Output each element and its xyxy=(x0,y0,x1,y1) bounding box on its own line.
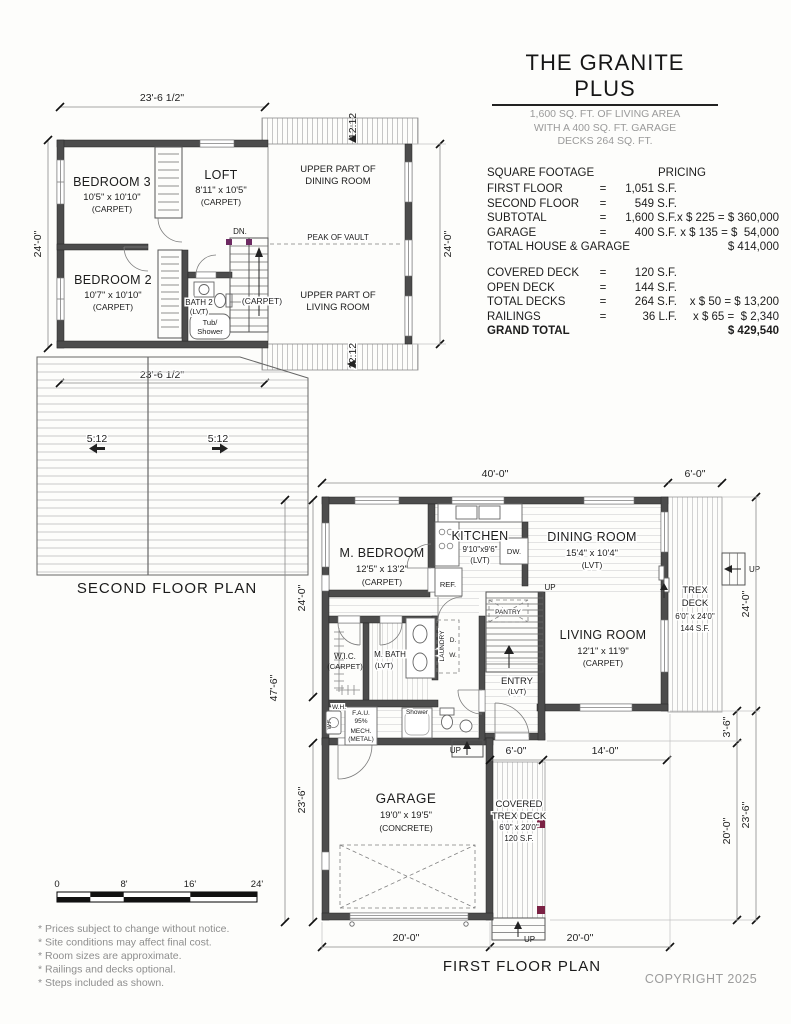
table-row: SUBTOTAL=1,600 S.F.x $ 225 = $ 360,000 xyxy=(487,211,779,226)
wall xyxy=(486,738,493,920)
bedroom3-floor: (CARPET) xyxy=(92,204,132,214)
wall xyxy=(329,590,430,597)
loft-label: LOFT xyxy=(204,168,237,182)
sink xyxy=(460,720,472,732)
sink xyxy=(413,653,427,671)
dim-left: 24'-0" xyxy=(32,230,44,257)
row-calc xyxy=(677,182,779,197)
wall xyxy=(322,738,329,920)
stairs-floor: (CARPET) xyxy=(242,296,282,306)
row-value: 264 S.F. xyxy=(609,295,677,310)
fau-label: F.A.U. xyxy=(352,710,370,717)
bath2-floor: (LVT) xyxy=(190,307,209,316)
first-floor-plan-title: FIRST FLOOR PLAN xyxy=(443,958,601,975)
row-eq xyxy=(597,324,609,339)
wall xyxy=(479,616,485,740)
row-label: GARAGE xyxy=(487,226,597,241)
row-calc: x $ 135 = $ 54,000 xyxy=(677,226,779,241)
mbedroom-floor: (CARPET) xyxy=(362,577,402,587)
row-calc xyxy=(677,266,779,281)
wall xyxy=(538,592,545,740)
refrigerator-label: REF. xyxy=(440,580,456,589)
row-label: TOTAL HOUSE & GARAGE xyxy=(487,240,677,255)
scale-24: 24' xyxy=(251,879,264,890)
row-value: 400 S.F. xyxy=(609,226,677,241)
kitchen-floor: (LVT) xyxy=(470,556,490,565)
wf-label: W.F. xyxy=(327,718,333,729)
row-value: 549 S.F. xyxy=(609,197,677,212)
covered-deck-label-2: TREX DECK xyxy=(492,811,547,822)
door xyxy=(124,247,148,271)
pricing-table: SQUARE FOOTAGE PRICING FIRST FLOOR=1,051… xyxy=(487,166,779,339)
wall xyxy=(57,341,268,348)
dryer-label: D. xyxy=(450,637,457,644)
shower-label: Shower xyxy=(406,709,429,716)
wic-label: W.I.C. xyxy=(334,652,356,661)
dim-right-36: 3'-6" xyxy=(721,716,733,737)
row-label: FIRST FLOOR xyxy=(487,182,597,197)
mbath-vanity xyxy=(406,618,435,678)
table-row: FIRST FLOOR=1,051 S.F. xyxy=(487,182,779,197)
row-eq: = xyxy=(597,281,609,296)
upper-living-label-1: UPPER PART OF xyxy=(300,290,376,301)
row-calc: x $ 65 = $ 2,340 xyxy=(677,310,779,325)
row-label: COVERED DECK xyxy=(487,266,597,281)
slope-label-top: 12:12 xyxy=(347,113,359,139)
pantry-label: PANTRY xyxy=(495,609,521,616)
table-row: GARAGE=400 S.F.x $ 135 = $ 54,000 xyxy=(487,226,779,241)
note-line: * Site conditions may affect final cost. xyxy=(38,937,212,949)
garage-label: GARAGE xyxy=(376,791,437,806)
row-eq: = xyxy=(597,310,609,325)
mbedroom-size: 12'5" x 13'2" xyxy=(356,564,408,575)
pricing-header: PRICING xyxy=(658,166,779,181)
washer-label: W. xyxy=(449,652,457,659)
mech-label: MECH. xyxy=(351,728,372,735)
sink xyxy=(456,506,477,519)
living-label: LIVING ROOM xyxy=(560,628,647,642)
upper-living-label-2: LIVING ROOM xyxy=(306,302,369,313)
table-row: SECOND FLOOR=549 S.F. xyxy=(487,197,779,212)
garage-size: 19'0" x 19'5" xyxy=(380,810,432,821)
row-value: 1,051 S.F. xyxy=(609,182,677,197)
row-label: RAILINGS xyxy=(487,310,597,325)
dim-top: 40'-0" xyxy=(482,468,509,480)
floor-plan-drawing: BEDROOM 3 10'5" x 10'10" (CARPET) LOFT 8… xyxy=(0,0,791,1024)
up-label: UP xyxy=(450,746,461,755)
trex-deck-size: 6'0" x 24'0" xyxy=(675,612,715,621)
dining-floor: (LVT) xyxy=(582,560,603,570)
deck-steps xyxy=(722,553,745,585)
note-line: * Railings and decks optional. xyxy=(38,964,176,976)
loft-floor: (CARPET) xyxy=(201,197,241,207)
second-floor-plan-title: SECOND FLOOR PLAN xyxy=(77,580,257,597)
living-floor: (CARPET) xyxy=(583,658,623,668)
dim-bottom-garage: 20'-0" xyxy=(393,932,420,944)
first-floor-plan: M. BEDROOM 12'5" x 13'2" (CARPET) KITCHE… xyxy=(268,468,760,975)
row-eq: = xyxy=(597,197,609,212)
dishwasher-label: DW. xyxy=(507,547,521,556)
closet xyxy=(158,250,182,338)
square-footage-header: SQUARE FOOTAGE xyxy=(487,166,658,181)
covered-deck-label-1: COVERED xyxy=(496,799,543,810)
dim-left-upper: 24'-0" xyxy=(296,584,308,611)
entry-floor: (LVT) xyxy=(508,687,527,696)
up-label: UP xyxy=(544,583,555,592)
dim-right-lower: 20'-0" xyxy=(721,817,733,844)
loft-size: 8'11" x 10'5" xyxy=(195,185,246,196)
scale-16: 16' xyxy=(184,879,197,890)
row-calc: x $ 50 = $ 13,200 xyxy=(677,295,779,310)
row-calc: $ 429,540 xyxy=(677,324,779,339)
upper-dining-label-1: UPPER PART OF xyxy=(300,164,376,175)
row-label: SUBTOTAL xyxy=(487,211,597,226)
newel-post xyxy=(226,239,232,245)
scale-bar: 0 8' 16' 24' xyxy=(54,879,263,902)
wall xyxy=(363,623,369,703)
dim-right-upper: 24'-0" xyxy=(740,590,752,617)
laundry-label: LAUNDRY xyxy=(439,630,446,662)
fau-pct-label: 95% xyxy=(354,718,367,725)
trex-deck-label-1: TREX xyxy=(682,585,708,596)
scale-8: 8' xyxy=(120,879,127,890)
roof-plan: 5:12 5:12 SECOND FLOOR PLAN xyxy=(37,357,308,597)
roof-slope-left: 5:12 xyxy=(87,433,108,445)
mbath-label: M. BATH xyxy=(374,650,406,659)
kitchen-size: 9'10"x9'6" xyxy=(463,545,498,554)
newel-post xyxy=(246,239,252,245)
dim-mid-14: 14'-0" xyxy=(592,745,619,757)
roof-strip-top xyxy=(262,118,418,144)
wall xyxy=(57,140,268,147)
bedroom2-label: BEDROOM 2 xyxy=(74,273,152,287)
bedroom2-size: 10'7" x 10'10" xyxy=(84,290,141,301)
second-floor-plan: BEDROOM 3 10'5" x 10'10" (CARPET) LOFT 8… xyxy=(32,92,454,387)
scale-0: 0 xyxy=(54,879,59,890)
table-row-grand-total: GRAND TOTAL$ 429,540 xyxy=(487,324,779,339)
dim-mid-6: 6'-0" xyxy=(506,745,527,757)
dim-top: 23'-6 1/2" xyxy=(140,92,185,104)
covered-deck-area: 120 S.F. xyxy=(504,834,533,843)
row-calc xyxy=(677,281,779,296)
garage-door xyxy=(350,913,468,926)
row-value: 1,600 S.F. xyxy=(609,211,677,226)
sink xyxy=(479,506,500,519)
dining-size: 15'4" x 10'4" xyxy=(566,548,618,559)
closet xyxy=(155,147,182,242)
stairs-dn-label: DN. xyxy=(233,227,247,236)
window xyxy=(405,162,412,336)
table-row: TOTAL HOUSE & GARAGE$ 414,000 xyxy=(487,240,779,255)
row-calc xyxy=(677,197,779,212)
hall-floor xyxy=(329,597,479,616)
plan-subtitle-1: 1,600 SQ. FT. OF LIVING AREA xyxy=(492,108,718,122)
living-size: 12'1" x 11'9" xyxy=(577,646,628,657)
mbedroom-label: M. BEDROOM xyxy=(340,546,425,560)
row-eq: = xyxy=(597,182,609,197)
row-label: OPEN DECK xyxy=(487,281,597,296)
row-label: GRAND TOTAL xyxy=(487,324,597,339)
tub-label-2: Shower xyxy=(197,327,223,336)
dim-deck-top: 6'-0" xyxy=(685,468,706,480)
upper-dining-label-2: DINING ROOM xyxy=(305,176,371,187)
dim-left-outer: 47'-6" xyxy=(268,674,280,701)
table-row: COVERED DECK=120 S.F. xyxy=(487,266,779,281)
deck-post xyxy=(537,906,545,914)
row-value: 120 S.F. xyxy=(609,266,677,281)
bedroom3-size: 10'5" x 10'10" xyxy=(83,192,140,203)
trex-deck-label-2: DECK xyxy=(682,598,709,609)
deck-steps xyxy=(492,918,545,940)
plan-subtitle-3: DECKS 264 SQ. FT. xyxy=(492,135,718,149)
table-row: TOTAL DECKS=264 S.F.x $ 50 = $ 13,200 xyxy=(487,295,779,310)
roof-strip-bottom xyxy=(262,344,418,370)
bedroom3-label: BEDROOM 3 xyxy=(73,175,151,189)
stairs-down xyxy=(226,238,268,332)
toilet xyxy=(440,708,454,715)
notes: * Prices subject to change without notic… xyxy=(38,923,229,989)
entry-floor xyxy=(485,660,538,733)
mbath-floor: (LVT) xyxy=(375,661,394,670)
trex-deck-area: 144 S.F. xyxy=(680,624,709,633)
plan-subtitle-2: WITH A 400 SQ. FT. GARAGE xyxy=(492,122,718,136)
sink xyxy=(413,625,427,643)
row-eq: = xyxy=(597,211,609,226)
table-row: OPEN DECK=144 S.F. xyxy=(487,281,779,296)
copyright: COPYRIGHT 2025 xyxy=(645,972,757,986)
row-value: 36 L.F. xyxy=(609,310,677,325)
water-heater-label: W.H. xyxy=(332,704,346,711)
row-calc: $ 414,000 xyxy=(677,240,779,255)
dim-right: 24'-0" xyxy=(442,230,454,257)
covered-deck-size: 6'0" x 20'0" xyxy=(499,823,539,832)
garage-floor: (CONCRETE) xyxy=(379,823,433,833)
row-label: SECOND FLOOR xyxy=(487,197,597,212)
entry-label: ENTRY xyxy=(501,676,534,687)
note-line: * Room sizes are approximate. xyxy=(38,950,182,962)
bedroom2-floor: (CARPET) xyxy=(93,302,133,312)
wic-floor: (CARPET) xyxy=(327,662,363,671)
tub-label-1: Tub/ xyxy=(203,318,219,327)
dim-right-outer: 23'-6" xyxy=(740,801,752,828)
bath2-label: BATH 2 xyxy=(185,298,213,307)
row-label: TOTAL DECKS xyxy=(487,295,597,310)
slider-door xyxy=(659,566,664,580)
row-calc: x $ 225 = $ 360,000 xyxy=(677,211,779,226)
row-value: 144 S.F. xyxy=(609,281,677,296)
note-line: * Steps included as shown. xyxy=(38,977,164,989)
dim-left-lower: 23'-6" xyxy=(296,786,308,813)
row-value xyxy=(609,324,677,339)
kitchen-label: KITCHEN xyxy=(452,529,509,543)
dim-bottom-right: 20'-0" xyxy=(567,932,594,944)
plan-title: THE GRANITE PLUS xyxy=(492,50,718,106)
peak-of-vault-label: PEAK OF VAULT xyxy=(307,233,369,242)
note-line: * Prices subject to change without notic… xyxy=(38,923,229,935)
mech-metal-label: (METAL) xyxy=(348,736,374,743)
floor-plan-sheet: THE GRANITE PLUS 1,600 SQ. FT. OF LIVING… xyxy=(0,0,791,1024)
up-label: UP xyxy=(524,935,535,944)
garage-slab xyxy=(340,845,475,908)
up-label: UP xyxy=(749,565,760,574)
toilet xyxy=(226,294,232,307)
row-eq: = xyxy=(597,266,609,281)
dining-label: DINING ROOM xyxy=(547,530,636,544)
title-block: THE GRANITE PLUS 1,600 SQ. FT. OF LIVING… xyxy=(492,50,718,149)
roof-slope-right: 5:12 xyxy=(208,433,229,445)
table-row: RAILINGS=36 L.F.x $ 65 = $ 2,340 xyxy=(487,310,779,325)
row-eq: = xyxy=(597,295,609,310)
row-eq: = xyxy=(597,226,609,241)
